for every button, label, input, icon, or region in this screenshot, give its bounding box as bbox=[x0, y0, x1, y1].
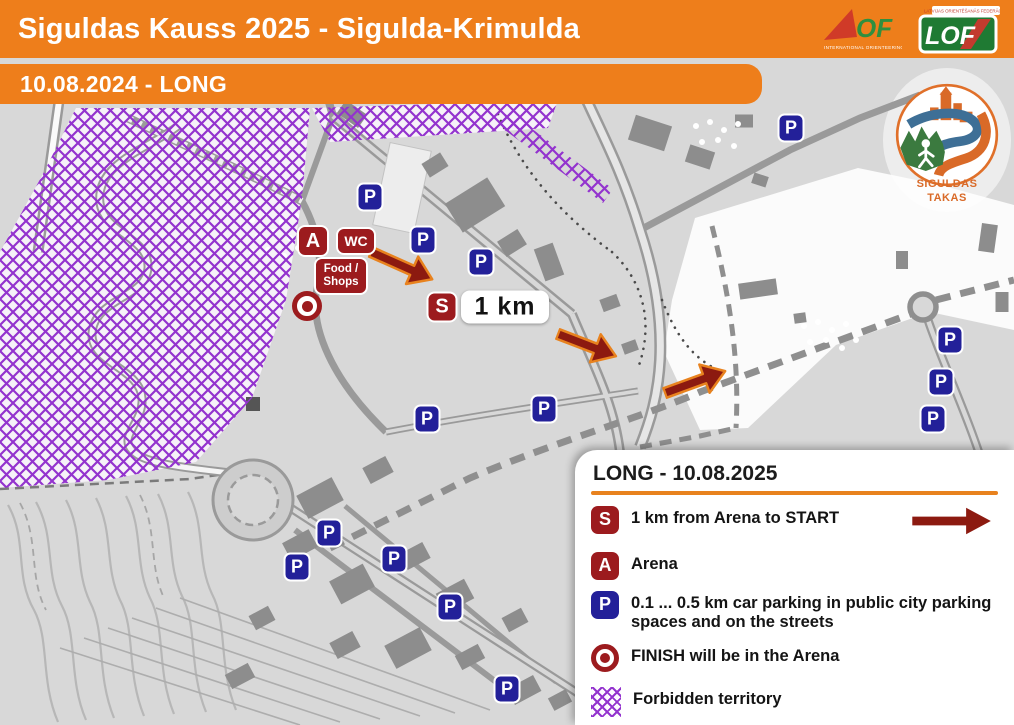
iof-sail-icon bbox=[824, 9, 857, 40]
legend-arrow-wrap bbox=[906, 506, 998, 541]
legend-item-start: S1 km from Arena to START bbox=[591, 506, 998, 541]
legend-items: S1 km from Arena to STARTAArenaP0.1 ... … bbox=[591, 506, 998, 718]
legend-icon-parking: P bbox=[591, 591, 619, 619]
legend-icon-arena: A bbox=[591, 552, 619, 580]
federation-logos: OF INTERNATIONAL ORIENTEERING FEDERATION… bbox=[822, 6, 1000, 54]
date-band: 10.08.2024 - LONG bbox=[0, 64, 762, 104]
legend-icon-forbidden bbox=[591, 687, 621, 717]
iof-logo: OF INTERNATIONAL ORIENTEERING FEDERATION bbox=[822, 6, 902, 52]
legend-item-arena: AArena bbox=[591, 552, 998, 580]
siguldas-takas-logo bbox=[894, 82, 1000, 188]
roundabout bbox=[910, 294, 936, 320]
legend-text-arena: Arena bbox=[631, 552, 678, 575]
legend-text-parking: 0.1 ... 0.5 km car parking in public cit… bbox=[631, 591, 998, 634]
legend-panel: LONG - 10.08.2025 S1 km from Arena to ST… bbox=[575, 450, 1014, 725]
legend-item-forbidden: Forbidden territory bbox=[591, 687, 998, 717]
legend-icon-finish bbox=[591, 644, 619, 672]
legend-route-arrow bbox=[906, 506, 998, 536]
lof-text: LOF bbox=[925, 22, 976, 50]
legend-item-finish: FINISH will be in the Arena bbox=[591, 644, 998, 672]
iof-of-text: OF bbox=[856, 13, 893, 43]
legend-text-finish: FINISH will be in the Arena bbox=[631, 644, 839, 667]
legend-divider bbox=[591, 491, 998, 495]
lof-logo: LATVIJAS ORIENTĒŠANĀS FEDERĀCIJA LOF bbox=[914, 6, 1000, 54]
legend-title: LONG - 10.08.2025 bbox=[593, 462, 998, 486]
event-map-poster: PPPPPPPPPPPPPPAWCFood /ShopsS1 km Siguld… bbox=[0, 0, 1014, 725]
legend-text-start: 1 km from Arena to START bbox=[631, 506, 839, 529]
siguldas-takas-caption: SIGULDAS TAKAS bbox=[887, 178, 1007, 206]
page-title: Siguldas Kauss 2025 - Sigulda-Krimulda bbox=[18, 0, 580, 58]
legend-icon-start: S bbox=[591, 506, 619, 534]
iof-tagline: INTERNATIONAL ORIENTEERING FEDERATION bbox=[824, 45, 902, 50]
badge-line1: SIGULDAS bbox=[887, 178, 1007, 192]
legend-text-forbidden: Forbidden territory bbox=[633, 687, 782, 710]
header-bar: Siguldas Kauss 2025 - Sigulda-Krimulda O… bbox=[0, 0, 1014, 58]
legend-item-parking: P0.1 ... 0.5 km car parking in public ci… bbox=[591, 591, 998, 634]
badge-line2: TAKAS bbox=[887, 192, 1007, 206]
date-band-label: 10.08.2024 - LONG bbox=[0, 71, 227, 98]
lof-tagline: LATVIJAS ORIENTĒŠANĀS FEDERĀCIJA bbox=[924, 9, 1000, 14]
